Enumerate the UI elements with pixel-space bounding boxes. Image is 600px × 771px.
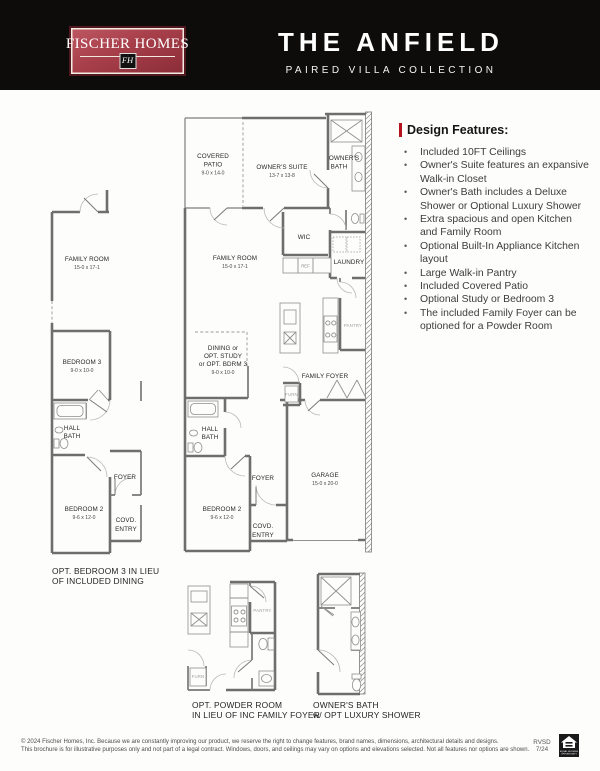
fixtures <box>188 584 274 686</box>
feature-item: The included Family Foyer can be optione… <box>399 307 591 334</box>
hall-bath-label-2: BATH <box>202 434 219 441</box>
dining-dims: 9-0 x 10-0 <box>212 370 235 376</box>
feature-item: Owner's Suite features an expansive Walk… <box>399 159 591 186</box>
feature-item: Extra spacious and open Kitchen and Fami… <box>399 213 591 240</box>
feature-item: Included Covered Patio <box>399 280 591 293</box>
left-covd-entry-label-2: ENTRY <box>115 526 137 533</box>
opt-luxury-shower-plan <box>315 572 370 696</box>
design-features-panel: Design Features: Included 10FT Ceilings … <box>399 123 591 334</box>
fixtures <box>321 577 361 691</box>
brochure-page: FISCHER HOMES FH THE ANFIELD PAIRED VILL… <box>0 0 600 771</box>
party-wall <box>366 112 372 552</box>
dining-label-1: DINING or <box>208 345 238 352</box>
family-room-label: FAMILY ROOM <box>213 255 257 262</box>
laundry-label: LAUNDRY <box>334 259 365 266</box>
left-bedroom3-dims: 9-0 x 10-0 <box>71 368 94 374</box>
left-foyer-label: FOYER <box>114 474 137 481</box>
walls <box>52 190 141 553</box>
title-block: THE ANFIELD PAIRED VILLA COLLECTION <box>236 27 546 76</box>
hall-bath-label-1: HALL <box>202 426 219 433</box>
opt-powder-room-plan: PANTRY FURN <box>182 574 300 696</box>
bedroom2-label: BEDROOM 2 <box>203 506 242 513</box>
svg-text:OPPORTUNITY: OPPORTUNITY <box>561 754 577 756</box>
left-plan-caption: OPT. BEDROOM 3 IN LIEU OF INCLUDED DININ… <box>52 567 159 587</box>
left-bedroom2-label: BEDROOM 2 <box>65 506 104 513</box>
opt-bath-caption: OWNER'S BATH w/ OPT LUXURY SHOWER <box>313 701 421 721</box>
doors <box>318 606 340 672</box>
foyer-label: FOYER <box>252 475 275 482</box>
left-hall-bath-label-1: HALL <box>64 425 81 432</box>
left-covd-entry-label-1: COVD. <box>116 517 137 524</box>
design-features-heading: Design Features: <box>399 123 591 137</box>
garage-dims: 15-0 x 20-0 <box>312 481 338 487</box>
disclaimer-line-2: This brochure is for illustrative purpos… <box>21 746 501 754</box>
covered-patio-label-2: PATIO <box>204 162 222 169</box>
dining-label-2: OPT. STUDY <box>204 353 243 360</box>
logo-name: FISCHER HOMES <box>66 36 189 53</box>
design-features-list: Included 10FT Ceilings Owner's Suite fea… <box>399 146 591 334</box>
revision-stamp: RVSD 7/24 <box>528 739 556 753</box>
dining-label-3: or OPT. BDRM 3 <box>199 361 248 368</box>
opt-powder-furn-label: FURN <box>192 674 205 679</box>
fischer-homes-logo: FISCHER HOMES FH <box>69 26 186 76</box>
owners-suite-label: OWNER'S SUITE <box>256 164 307 171</box>
page-subtitle: PAIRED VILLA COLLECTION <box>236 65 546 76</box>
owners-bath-label-2: BATH <box>331 164 348 171</box>
page-title: THE ANFIELD <box>236 27 546 58</box>
feature-item: Large Walk-in Pantry <box>399 267 591 280</box>
bedroom2-dims: 9-6 x 12-0 <box>211 515 234 521</box>
equal-housing-opportunity-icon: EQUAL HOUSING OPPORTUNITY <box>559 734 579 757</box>
feature-item: Optional Built-In Appliance Kitchen layo… <box>399 240 591 267</box>
left-bedroom3-label: BEDROOM 3 <box>63 359 102 366</box>
room-labels: FAMILY ROOM 15-0 x 17-1 BEDROOM 3 9-0 x … <box>63 256 138 533</box>
left-family-room-dims: 15-0 x 17-1 <box>74 265 100 271</box>
pantry-label: PANTRY <box>344 323 362 328</box>
owners-bath-label-1: OWNER'S <box>329 155 359 162</box>
left-option-plan: FAMILY ROOM 15-0 x 17-1 BEDROOM 3 9-0 x … <box>10 183 160 563</box>
svg-text:EQUAL HOUSING: EQUAL HOUSING <box>560 750 578 753</box>
covd-entry-label-2: ENTRY <box>252 532 274 539</box>
logo-rule: FH <box>80 56 175 57</box>
family-foyer-label: FAMILY FOYER <box>302 373 349 380</box>
covd-entry-label-1: COVD. <box>253 523 274 530</box>
walls <box>185 114 366 551</box>
logo-monogram: FH <box>119 53 136 69</box>
furn-label: FURN <box>285 392 298 397</box>
feature-item: Optional Study or Bedroom 3 <box>399 293 591 306</box>
opt-powder-pantry-label: PANTRY <box>253 608 271 613</box>
disclaimer: © 2024 Fischer Homes, Inc. Because we ar… <box>21 738 501 754</box>
wic-label: WIC <box>298 234 311 241</box>
main-floor-plan: COVERED PATIO 9-0 x 14-0 OWNER'S SUITE 1… <box>180 110 380 558</box>
opt-powder-caption: OPT. POWDER ROOM IN LIEU OF INC FAMILY F… <box>192 701 320 721</box>
feature-item: Included 10FT Ceilings <box>399 146 591 159</box>
feature-item: Owner's Bath includes a Deluxe Shower or… <box>399 186 591 213</box>
covered-patio-label-1: COVERED <box>197 153 229 160</box>
ref-label: REF <box>301 264 310 269</box>
masthead: FISCHER HOMES FH THE ANFIELD PAIRED VILL… <box>0 0 600 90</box>
family-room-dims: 15-0 x 17-1 <box>222 264 248 270</box>
left-hall-bath-label-2: BATH <box>64 433 81 440</box>
covered-patio-dims: 9-0 x 14-0 <box>202 171 225 177</box>
left-family-room-label: FAMILY ROOM <box>65 256 109 263</box>
garage-label: GARAGE <box>311 472 339 479</box>
left-bedroom2-dims: 9-6 x 12-0 <box>73 515 96 521</box>
owners-suite-dims: 13-7 x 13-8 <box>269 173 295 179</box>
disclaimer-line-1: © 2024 Fischer Homes, Inc. Because we ar… <box>21 738 501 746</box>
